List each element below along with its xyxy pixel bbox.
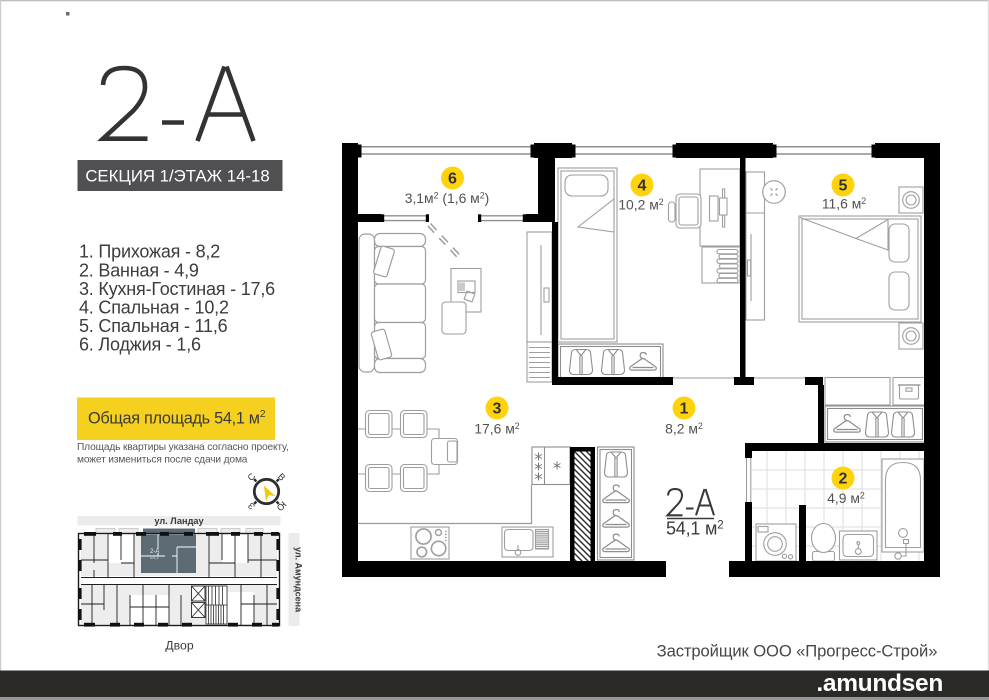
svg-text:6: 6 — [448, 171, 457, 188]
svg-text:5. Спальная - 11,6: 5. Спальная - 11,6 — [79, 316, 228, 336]
svg-text:8,2 м2: 8,2 м2 — [665, 421, 703, 437]
svg-text:4,9 м2: 4,9 м2 — [827, 490, 865, 506]
svg-text:54,1 м2: 54,1 м2 — [666, 519, 723, 539]
svg-text:Общая площадь 54,1 м2: Общая площадь 54,1 м2 — [88, 408, 266, 428]
svg-text:2. Ванная - 4,9: 2. Ванная - 4,9 — [79, 260, 199, 280]
svg-text:4. Спальная - 10,2: 4. Спальная - 10,2 — [79, 298, 229, 318]
svg-text:3,1м2 (1,6 м2): 3,1м2 (1,6 м2) — [405, 190, 490, 206]
svg-text:2: 2 — [839, 471, 848, 488]
svg-text:5: 5 — [839, 178, 848, 195]
svg-text:54,1: 54,1 — [150, 555, 159, 560]
svg-text:3. Кухня-Гостиная - 17,6: 3. Кухня-Гостиная - 17,6 — [79, 279, 275, 299]
svg-text:11,6 м2: 11,6 м2 — [822, 196, 866, 212]
svg-text:ул. Ландау: ул. Ландау — [154, 516, 204, 526]
svg-text:1: 1 — [680, 401, 689, 418]
svg-text:может измениться после сдачи: может измениться после сдачи дома — [77, 455, 248, 466]
svg-text:10,2 м2: 10,2 м2 — [618, 197, 663, 213]
svg-text:6. Лоджия - 1,6: 6. Лоджия - 1,6 — [79, 335, 201, 355]
svg-text:СЕКЦИЯ 1/ЭТАЖ 14-18: СЕКЦИЯ 1/ЭТАЖ 14-18 — [85, 167, 269, 186]
svg-text:ул. Амундсена: ул. Амундсена — [294, 547, 304, 613]
svg-text:3: 3 — [493, 401, 502, 418]
svg-text:17,6 м2: 17,6 м2 — [474, 421, 519, 437]
svg-text:4: 4 — [638, 178, 647, 195]
svg-text:Застройщик ООО «Прогресс-Строй: Застройщик ООО «Прогресс-Строй» — [657, 642, 938, 661]
svg-text:.amundsen: .amundsen — [816, 670, 943, 697]
svg-text:Двор: Двор — [165, 639, 194, 653]
svg-text:1. Прихожая - 8,2: 1. Прихожая - 8,2 — [79, 242, 220, 262]
svg-text:Площадь квартиры указана согла: Площадь квартиры указана согласно проект… — [77, 442, 289, 453]
